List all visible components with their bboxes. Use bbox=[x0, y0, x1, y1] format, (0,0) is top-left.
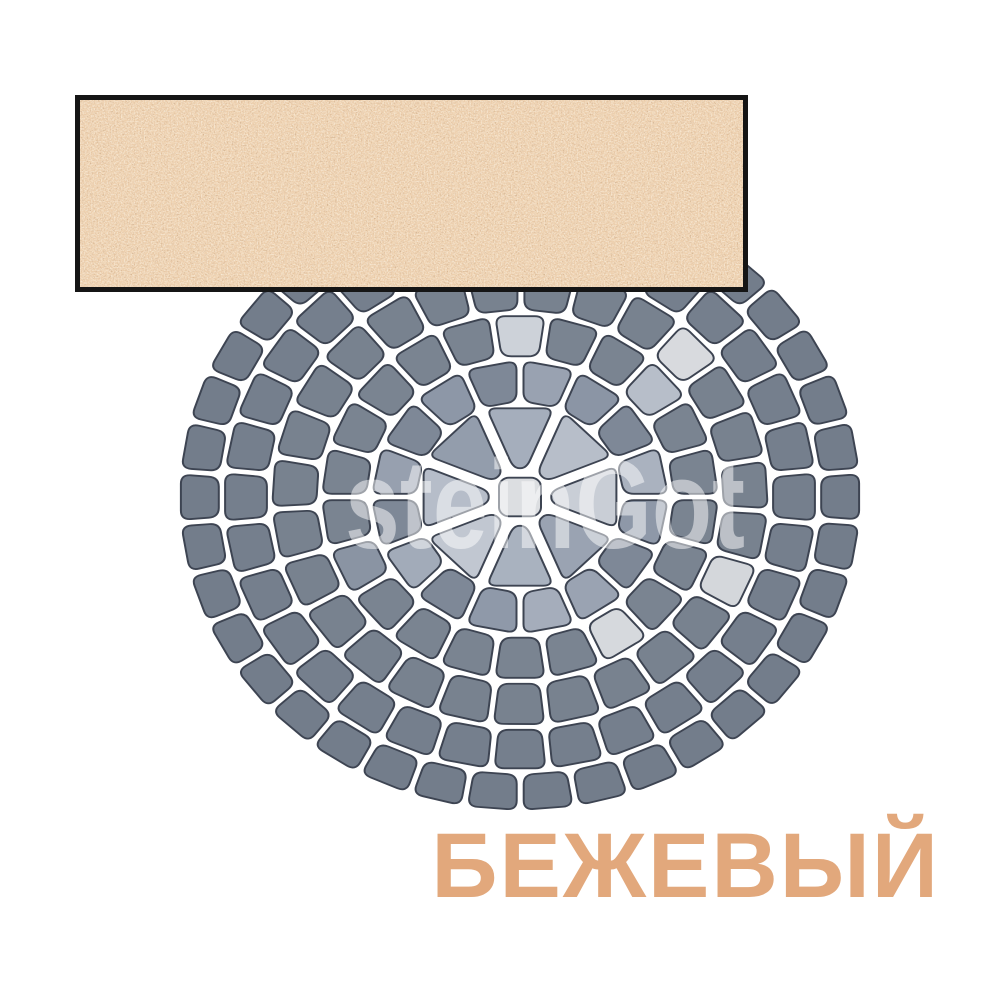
paving-stone bbox=[575, 763, 625, 804]
paving-stone bbox=[495, 684, 544, 724]
paving-stone bbox=[670, 721, 723, 767]
paving-stone bbox=[274, 511, 322, 557]
paving-stone bbox=[595, 659, 649, 708]
paving-stone bbox=[469, 772, 517, 809]
paving-stone bbox=[387, 707, 441, 754]
paving-stone bbox=[748, 570, 799, 620]
paving-stone bbox=[778, 614, 827, 662]
paving-stone bbox=[469, 362, 516, 406]
paving-stone bbox=[183, 524, 225, 569]
paving-stone bbox=[748, 374, 799, 424]
paving-stone bbox=[547, 629, 597, 675]
paving-stone bbox=[766, 524, 813, 571]
paving-stone bbox=[638, 632, 694, 683]
paving-stone bbox=[440, 676, 491, 721]
paving-stone bbox=[469, 588, 516, 632]
paving-stone bbox=[241, 374, 292, 424]
paving-stone bbox=[547, 676, 598, 721]
paving-stone bbox=[183, 425, 225, 470]
paving-stone bbox=[397, 609, 450, 658]
paving-stone bbox=[181, 475, 219, 519]
paving-stone bbox=[497, 316, 544, 356]
paving-stone bbox=[524, 772, 572, 809]
paving-stone bbox=[815, 425, 857, 470]
paving-stone bbox=[318, 721, 371, 767]
paving-stone bbox=[227, 524, 274, 571]
paving-stone bbox=[821, 475, 859, 519]
paving-scheme-canvas: steinGot БЕЖЕВЫЙ bbox=[0, 0, 1000, 1000]
paving-stone bbox=[624, 745, 676, 789]
paving-stone bbox=[365, 745, 417, 789]
paving-stone bbox=[444, 629, 494, 675]
paving-stone bbox=[213, 332, 262, 380]
paving-stone bbox=[286, 555, 339, 604]
paving-stone bbox=[213, 614, 262, 662]
paving-stone bbox=[773, 474, 815, 519]
paving-stone bbox=[389, 658, 443, 707]
paving-stone bbox=[778, 332, 827, 380]
paving-stone bbox=[766, 423, 813, 470]
swatch-speckle-light bbox=[80, 100, 743, 287]
paving-stone bbox=[444, 319, 494, 365]
paving-stone bbox=[273, 461, 318, 506]
product-image: steinGot БЕЖЕВЫЙ bbox=[0, 0, 1000, 1000]
paving-stone bbox=[241, 570, 292, 620]
texture-swatch bbox=[75, 95, 748, 292]
paving-stone bbox=[815, 524, 857, 569]
paving-stone bbox=[673, 597, 728, 648]
paving-stone bbox=[279, 411, 330, 459]
paving-stone bbox=[495, 730, 544, 768]
paving-stone bbox=[416, 763, 466, 804]
paving-stone bbox=[524, 362, 571, 406]
paving-stone bbox=[194, 570, 240, 617]
paving-stone bbox=[227, 423, 274, 470]
paving-stone bbox=[590, 609, 643, 658]
watermark-text: steinGot bbox=[345, 434, 745, 575]
paving-stone bbox=[800, 570, 846, 617]
paving-stone bbox=[440, 723, 491, 766]
paving-stone bbox=[359, 579, 413, 629]
paving-stone bbox=[599, 707, 653, 754]
paving-stone bbox=[497, 638, 544, 678]
color-name-label: БЕЖЕВЫЙ bbox=[431, 813, 940, 917]
paving-stone bbox=[524, 588, 571, 632]
paving-stone bbox=[800, 377, 846, 424]
paving-stone bbox=[549, 723, 600, 766]
paving-stone bbox=[194, 377, 240, 424]
paving-stone bbox=[225, 474, 267, 519]
paving-stone bbox=[547, 319, 597, 365]
